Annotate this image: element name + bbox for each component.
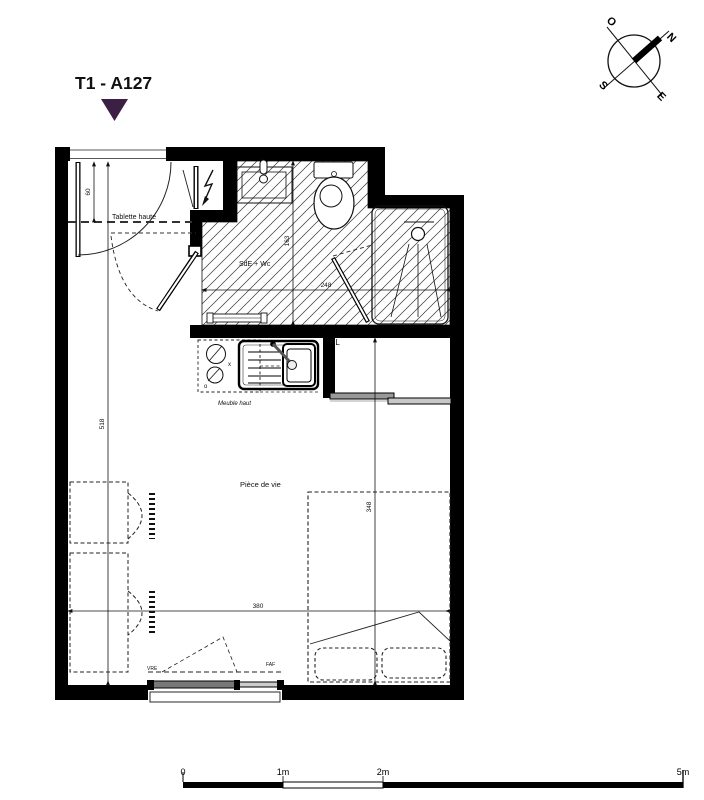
dim-apartment-depth: 518 bbox=[99, 418, 106, 429]
window-glass-right bbox=[239, 682, 280, 687]
room-label-living: Pièce de vie bbox=[240, 480, 281, 489]
scale-bar: 0 1m 2m 5m bbox=[180, 767, 689, 788]
kitchen: x o Meuble haut bbox=[198, 340, 320, 407]
closet-sliding-door-1 bbox=[330, 393, 394, 399]
title-pointer-icon bbox=[101, 99, 128, 121]
bathroom-door bbox=[111, 236, 201, 311]
dim-living-width: 380 bbox=[253, 603, 264, 610]
desk-2 bbox=[70, 553, 128, 672]
hob bbox=[207, 345, 226, 384]
compass-east-label: E bbox=[654, 90, 668, 104]
dim-bathroom-depth: 163 bbox=[284, 235, 291, 246]
window-vre-label: VRE bbox=[147, 666, 158, 672]
pillow-2 bbox=[382, 648, 446, 678]
towel-radiator bbox=[207, 313, 267, 323]
bottom-window: VRE FAF bbox=[147, 637, 284, 702]
dim-bathroom-width: 248 bbox=[321, 282, 332, 289]
window-glass-left bbox=[150, 681, 237, 688]
compass-south-label: S bbox=[596, 79, 610, 93]
scale-1m-label: 1m bbox=[277, 767, 290, 777]
scale-5m-label: 5m bbox=[677, 767, 690, 777]
high-shelf: Tablette haute bbox=[68, 214, 196, 233]
floorplan-drawing: T1 - A127 O N S E bbox=[0, 0, 704, 800]
title-block: T1 - A127 bbox=[75, 73, 152, 121]
lightning-bolt-icon bbox=[202, 170, 213, 206]
window-sill bbox=[150, 692, 280, 702]
hob-mark-x: x bbox=[228, 362, 231, 368]
compass-icon: O N S E bbox=[596, 15, 678, 104]
desk-1 bbox=[70, 482, 128, 543]
toilet bbox=[314, 162, 354, 229]
room-label-bathroom: SdE + Wc bbox=[239, 261, 271, 268]
pillow-1 bbox=[315, 648, 377, 680]
closet-label: PL bbox=[330, 338, 340, 347]
high-shelf-label: Tablette haute bbox=[112, 214, 156, 221]
upper-cabinet-label: Meuble haut bbox=[218, 401, 251, 407]
scale-0-label: 0 bbox=[180, 767, 185, 777]
floorplan-page: T1 - A127 O N S E bbox=[0, 0, 704, 800]
entrance-door bbox=[70, 150, 171, 257]
electrical-niche bbox=[183, 166, 213, 209]
scale-2m-label: 2m bbox=[377, 767, 390, 777]
bed bbox=[308, 492, 450, 682]
window-faf-label: FAF bbox=[266, 662, 275, 668]
chair-2 bbox=[128, 591, 152, 635]
shower-head-icon bbox=[412, 228, 425, 241]
closet: PL bbox=[330, 338, 451, 404]
hob-mark-o: o bbox=[204, 384, 208, 390]
dim-entry-depth: 60 bbox=[85, 188, 92, 196]
dim-bed-zone-depth: 348 bbox=[366, 501, 373, 512]
closet-sliding-door-2 bbox=[388, 398, 451, 404]
compass-west-label: O bbox=[604, 15, 619, 30]
unit-title: T1 - A127 bbox=[75, 73, 152, 93]
chair-1 bbox=[128, 493, 152, 539]
kitchen-sink bbox=[239, 341, 318, 389]
